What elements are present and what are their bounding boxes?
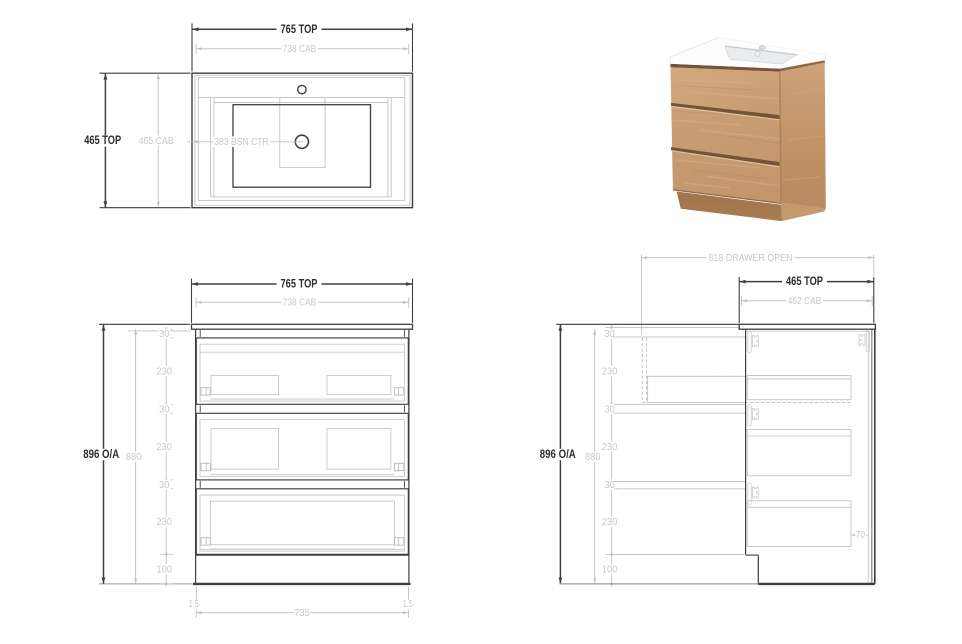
svg-text:465 TOP: 465 TOP <box>786 274 823 288</box>
svg-text:1.5: 1.5 <box>189 599 199 610</box>
svg-text:880: 880 <box>126 451 142 463</box>
svg-text:896 O/A: 896 O/A <box>83 447 119 461</box>
svg-text:100: 100 <box>602 563 618 575</box>
svg-text:30: 30 <box>604 479 615 491</box>
svg-text:100: 100 <box>157 563 173 575</box>
svg-text:30: 30 <box>604 403 615 415</box>
svg-text:1.5: 1.5 <box>403 599 413 610</box>
svg-text:30: 30 <box>604 328 615 340</box>
svg-text:896 O/A: 896 O/A <box>540 447 576 461</box>
svg-text:30: 30 <box>159 403 170 415</box>
svg-text:462 CAB: 462 CAB <box>788 295 822 307</box>
svg-text:230: 230 <box>602 441 618 453</box>
svg-text:738 CAB: 738 CAB <box>283 43 317 55</box>
svg-text:738 CAB: 738 CAB <box>283 297 317 309</box>
svg-text:230: 230 <box>157 516 173 528</box>
svg-text:818 DRAWER OPEN: 818 DRAWER OPEN <box>709 252 793 264</box>
svg-text:465 CAB: 465 CAB <box>139 135 174 147</box>
svg-text:30: 30 <box>159 328 170 340</box>
svg-text:765 TOP: 765 TOP <box>281 276 318 290</box>
svg-text:465 TOP: 465 TOP <box>84 133 121 147</box>
svg-text:230: 230 <box>157 365 173 377</box>
svg-text:383 BSN CTR: 383 BSN CTR <box>214 136 269 148</box>
svg-text:70: 70 <box>855 530 865 541</box>
svg-text:880: 880 <box>585 451 601 463</box>
svg-text:230: 230 <box>157 441 173 453</box>
svg-text:735: 735 <box>294 607 310 619</box>
svg-text:230: 230 <box>602 365 618 377</box>
svg-text:765 TOP: 765 TOP <box>281 22 318 36</box>
svg-text:30: 30 <box>159 479 170 491</box>
svg-text:230: 230 <box>602 516 618 528</box>
